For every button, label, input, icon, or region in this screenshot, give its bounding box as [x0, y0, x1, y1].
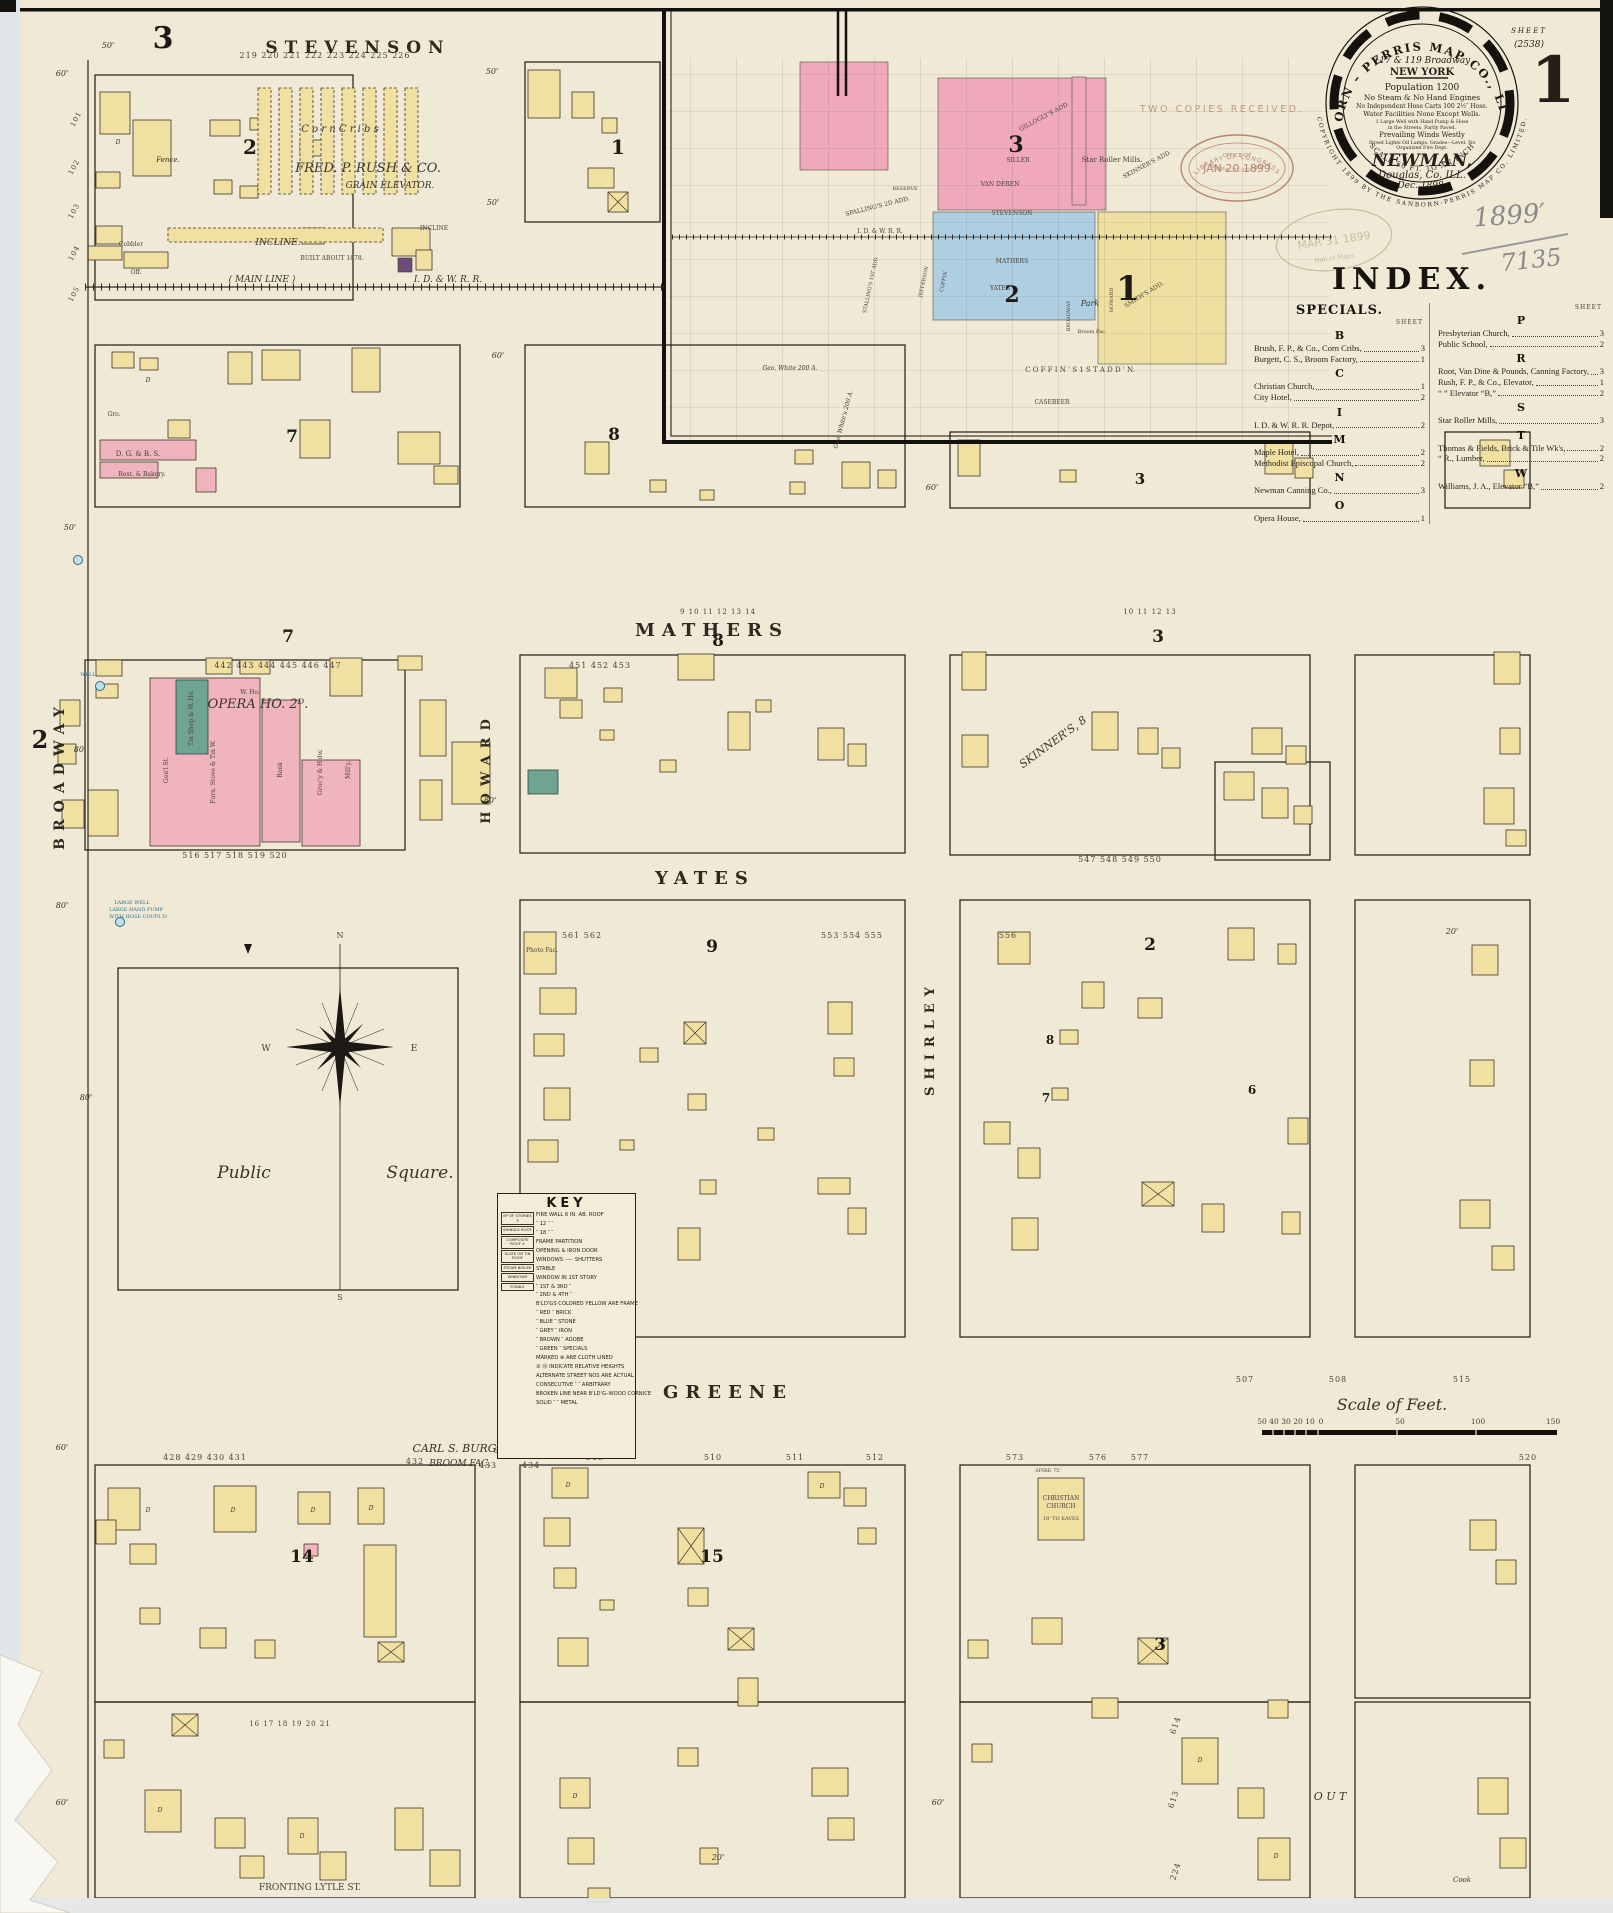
- building: [395, 1808, 423, 1850]
- inset-grid: [668, 58, 1330, 440]
- index-entry: Newman Canning Co., 3: [1254, 485, 1425, 496]
- building: [962, 652, 986, 690]
- building: [1494, 652, 1520, 684]
- building: [572, 92, 594, 118]
- map-label: 50': [102, 41, 114, 50]
- index-entry-name: Public School,: [1438, 339, 1488, 350]
- map-label: INCLINE.: [254, 238, 300, 248]
- map-label: Square.: [386, 1163, 453, 1183]
- map-label: D: [230, 1507, 236, 1514]
- key-line: ″ 2ND & 4TH ″: [536, 1291, 651, 1300]
- building: [528, 70, 560, 118]
- index-entry: City Hotel, 2: [1254, 392, 1425, 403]
- map-label: 3: [1135, 470, 1145, 488]
- scale-bar: Scale of Feet.: [1262, 1395, 1557, 1435]
- building: [858, 1528, 876, 1544]
- index-entry-name: Rush, F. P., & Co., Elevator,: [1438, 377, 1534, 388]
- map-label: 80': [56, 901, 68, 910]
- map-label: Bank: [277, 762, 284, 778]
- index-entry: Thomas & Fields, Brick & Tile Wk's, 2: [1438, 443, 1604, 454]
- map-label: 14: [290, 1547, 314, 1567]
- index-entry-sheet: 2: [1600, 481, 1604, 492]
- building: [321, 88, 334, 194]
- map-label: LARGE WELL: [114, 900, 150, 906]
- index-entry: Root, Van Dine & Pounds, Canning Factory…: [1438, 366, 1604, 377]
- index-sheet-header: SHEET: [1438, 304, 1602, 311]
- map-label: 433: [479, 1461, 497, 1470]
- building: [215, 1818, 245, 1848]
- map-label: Off.: [131, 269, 142, 276]
- map-label: 515: [1453, 1375, 1471, 1384]
- map-label: 553 554 555: [821, 931, 883, 940]
- map-label: 8: [712, 631, 724, 651]
- building: [240, 1856, 264, 1878]
- map-label: 60': [56, 1798, 68, 1807]
- building: [1282, 1212, 1300, 1234]
- map-label: 510: [704, 1453, 722, 1462]
- building: [430, 1850, 460, 1886]
- building: [1492, 1246, 1514, 1270]
- key-line: MARKED ⊗ ARE CLOTH LINED: [536, 1354, 651, 1363]
- pencil-year: 1899′: [1472, 199, 1546, 234]
- index-entry-sheet: 2: [1600, 453, 1604, 464]
- map-label: Geo. White 200 A.: [762, 365, 817, 372]
- building: [196, 468, 216, 492]
- index-leader-dots: [1301, 455, 1419, 456]
- building: [1478, 1778, 1508, 1814]
- index-entry-sheet: 2: [1421, 447, 1425, 458]
- index-leader-dots: [1336, 427, 1418, 428]
- map-label: Cook: [1453, 1876, 1471, 1884]
- key-line: FIRE WALL 6 IN. AB. ROOF: [536, 1211, 651, 1220]
- map-label: D: [145, 377, 151, 384]
- building: [1278, 944, 1296, 964]
- map-label: HOWARD: [1109, 288, 1115, 313]
- map-label: Tin Shop & W. Ho.: [188, 690, 195, 746]
- building: [560, 700, 582, 718]
- index-entry-sheet: 1: [1600, 377, 1604, 388]
- map-label: 3: [1154, 1635, 1166, 1655]
- index-entry-sheet: 2: [1600, 339, 1604, 350]
- key-line: SOLID ″ ″ METAL: [536, 1399, 651, 1408]
- index-leader-dots: [1567, 450, 1597, 451]
- map-label: ( MAIN LINE ): [229, 274, 296, 285]
- map-label: CASEBEER: [1034, 399, 1070, 406]
- index-entry-sheet: 3: [1421, 343, 1425, 354]
- building: [398, 656, 422, 670]
- map-label: 60': [926, 483, 938, 492]
- building: [1268, 1700, 1288, 1718]
- index-leader-dots: [1499, 423, 1597, 424]
- map-label: 50': [487, 198, 499, 207]
- index-entry: Star Roller Mills, 3: [1438, 415, 1604, 426]
- building: [878, 470, 896, 488]
- index-leader-dots: [1294, 400, 1419, 401]
- index-entry: Williams, J. A., Elevator “B,” 2: [1438, 481, 1604, 492]
- building: [650, 480, 666, 492]
- map-label: GRAIN ELEVATOR.: [346, 181, 435, 191]
- index-leader-dots: [1512, 336, 1598, 337]
- building: [812, 1768, 848, 1796]
- block-outline: [1355, 900, 1530, 1337]
- index-letter: W: [1438, 467, 1604, 480]
- index-entry-name: “ ” Elevator “B,”: [1438, 388, 1496, 399]
- building: [1082, 982, 1104, 1008]
- building: [828, 1002, 852, 1034]
- building: [972, 1744, 992, 1762]
- building: [1202, 1204, 1224, 1232]
- building: [688, 1588, 708, 1606]
- building: [1162, 748, 1180, 768]
- scale-tick: 50: [1395, 1417, 1405, 1426]
- key-side-label: STEAM BOILER: [501, 1264, 534, 1273]
- building: [1470, 1520, 1496, 1550]
- seal-date: Dec. 1898.: [1396, 181, 1446, 191]
- key-line: ″ GREEN ″ SPECIALS: [536, 1345, 651, 1354]
- key-line: OPENING & IRON DOOR: [536, 1247, 651, 1256]
- map-label: Public: [216, 1163, 271, 1183]
- index-entry-name: Newman Canning Co.,: [1254, 485, 1332, 496]
- index-column-right: SHEET P Presbyterian Church, 3 Public Sc…: [1429, 303, 1608, 524]
- well-marker: [74, 556, 83, 565]
- building: [984, 1122, 1010, 1144]
- map-label: Photo Fac.: [526, 947, 558, 954]
- map-label: 103: [67, 202, 82, 220]
- map-label: 2: [243, 135, 257, 159]
- key-line: ″ 18 ″ ″: [536, 1229, 651, 1238]
- index-leader-dots: [1303, 521, 1419, 522]
- key-side-label: Nº OF STORIES 3: [501, 1212, 534, 1225]
- index-entry-name: “ R., Lumber,: [1438, 453, 1485, 464]
- index-title: INDEX.: [1250, 262, 1574, 297]
- key-line: ″ RED ″ BRICK: [536, 1309, 651, 1318]
- map-label: D: [1197, 1757, 1203, 1764]
- map-label: 18' TO EAVES: [1043, 1516, 1080, 1522]
- index-entry: Maple Hotel, 2: [1254, 447, 1425, 458]
- sanborn-map-sheet: { "colors":{"paper":"#efe9d6","frame_yel…: [0, 0, 1613, 1913]
- key-line: B'LD'GS COLORED YELLOW ARE FRAME: [536, 1300, 651, 1309]
- map-label: SILLER: [1006, 157, 1030, 164]
- key-line: ″ BLUE ″ STONE: [536, 1318, 651, 1327]
- map-label: 9 10 11 12 13 14: [680, 608, 756, 616]
- map-label: SKINNER'S, 8: [1017, 713, 1089, 770]
- building: [96, 1520, 116, 1544]
- key-lines: FIRE WALL 6 IN. AB. ROOF ″ 12 ″ ″ ″ 18 ″…: [536, 1211, 651, 1408]
- building: [756, 700, 771, 712]
- map-label: 3: [1152, 627, 1164, 647]
- map-label: Park: [1080, 299, 1100, 308]
- index-entry: Brush, F. P., & Co., Corn Cribs, 3: [1254, 343, 1425, 354]
- map-label: 561 562: [562, 931, 602, 940]
- index-letter: O: [1254, 499, 1425, 512]
- building: [420, 780, 442, 820]
- map-label: 7: [286, 427, 298, 447]
- key-line: WINDOW IN 1ST STORY: [536, 1274, 651, 1283]
- building: [600, 1600, 614, 1610]
- building: [738, 1678, 758, 1706]
- index-entry: Burgett, C. S., Broom Factory, 1: [1254, 354, 1425, 365]
- inset-town-plan: [664, 10, 1332, 442]
- index-letter: I: [1254, 406, 1425, 419]
- building: [1506, 830, 1526, 846]
- map-label: 102: [67, 158, 82, 176]
- index-letter: P: [1438, 314, 1604, 327]
- map-label: 7: [282, 627, 294, 647]
- building: [258, 88, 271, 194]
- building: [640, 1048, 658, 1062]
- map-label: 6: [1248, 1083, 1256, 1097]
- map-label: CHURCH: [1046, 1503, 1075, 1510]
- map-label: 104: [67, 244, 82, 262]
- building: [320, 1852, 346, 1880]
- map-label: 219 220 221 222 223 224 225 226: [240, 51, 411, 60]
- index-leader-dots: [1487, 461, 1598, 462]
- block-outline: [118, 968, 458, 1290]
- building: [600, 730, 614, 740]
- map-label: 428 429 430 431: [163, 1453, 247, 1462]
- building: [1092, 1698, 1118, 1718]
- map-label: I. D. & W. R. R.: [413, 275, 482, 285]
- well-marker: [96, 682, 105, 691]
- compass-s-label: S: [337, 1293, 342, 1302]
- building: [678, 1228, 700, 1260]
- map-label: D: [572, 1793, 578, 1800]
- index-leader-dots: [1591, 374, 1598, 375]
- map-label: 556: [999, 931, 1017, 940]
- key-line: FRAME PARTITION: [536, 1238, 651, 1247]
- map-label: SPIRE 75': [1035, 1468, 1061, 1474]
- map-label: 442 443 444 445 446 447: [214, 661, 341, 670]
- key-legend-panel: KEY Nº OF STORIES 3 SHINGLE ROOF COMPOSI…: [497, 1193, 636, 1459]
- building: [834, 1058, 854, 1076]
- index-entry-sheet: 3: [1600, 328, 1604, 339]
- building: [585, 442, 609, 474]
- map-label: C O F F I N ' S 1 S T A D D ' N.: [1025, 366, 1135, 374]
- building: [1060, 1030, 1078, 1044]
- index-entry-sheet: 2: [1600, 443, 1604, 454]
- map-label: 511: [786, 1453, 804, 1462]
- map-label: 80': [74, 745, 86, 754]
- building: [962, 735, 988, 767]
- building: [214, 180, 232, 194]
- map-label: 60': [56, 69, 68, 78]
- index-entry: Christian Church, 1: [1254, 381, 1425, 392]
- building: [1018, 1148, 1040, 1178]
- map-label: Cobbler: [119, 241, 143, 248]
- index-entry: I. D. & W. R. R. Depot, 2: [1254, 420, 1425, 431]
- key-side-label: COMPOSITE ROOF 4: [501, 1236, 534, 1249]
- map-label: INCLINE: [420, 225, 448, 232]
- map-label: 20': [711, 1853, 724, 1862]
- index-leader-dots: [1355, 465, 1418, 466]
- map-label: C o r n C r i b s: [301, 124, 379, 135]
- map-label: D: [115, 139, 121, 146]
- building: [968, 1640, 988, 1658]
- index-entry-sheet: 2: [1421, 458, 1425, 469]
- map-label: 576: [1089, 1453, 1107, 1462]
- key-line: ALTERNATE STREET NOS ARE ACTUAL: [536, 1372, 651, 1381]
- building: [828, 1818, 854, 1840]
- scale-tick: 50: [1257, 1417, 1267, 1426]
- index-entry-sheet: 1: [1421, 354, 1425, 365]
- building: [168, 420, 190, 438]
- index-entry: Presbyterian Church, 3: [1438, 328, 1604, 339]
- map-label: RESERVE: [892, 186, 918, 192]
- building: [210, 120, 240, 136]
- sheet-big-number: 1: [1531, 43, 1576, 118]
- map-label: FRED. P. RUSH & CO.: [294, 161, 441, 176]
- scale-tick: 10: [1305, 1417, 1315, 1426]
- building: [958, 440, 980, 476]
- index-sheet-header: SHEET: [1254, 319, 1423, 326]
- building: [534, 1034, 564, 1056]
- building: [554, 1568, 576, 1588]
- key-line: ″ 1ST & 3RD ″: [536, 1283, 651, 1292]
- map-label: HOWARD: [479, 712, 494, 824]
- map-label: O U T: [1314, 1790, 1348, 1803]
- building: [416, 250, 432, 270]
- map-label: 15: [700, 1547, 724, 1567]
- building: [1288, 1118, 1308, 1144]
- map-label: 520: [1519, 1453, 1537, 1462]
- map-label: STEVENSON: [992, 210, 1033, 217]
- compass-n-label: N: [337, 931, 344, 940]
- index-column-left: SPECIALS. SHEET B Brush, F. P., & Co., C…: [1250, 303, 1429, 524]
- map-label: 9: [706, 937, 718, 957]
- building: [818, 728, 844, 760]
- map-label: BROADWAY: [1066, 300, 1072, 331]
- map-label: WITH HOSE COUPL'D: [109, 914, 167, 920]
- building: [545, 668, 577, 698]
- building: [700, 1180, 716, 1194]
- index-entry: Rush, F. P., & Co., Elevator, 1: [1438, 377, 1604, 388]
- building: [300, 420, 330, 458]
- map-label: 2: [32, 725, 49, 754]
- map-label: GREENE: [663, 1382, 793, 1403]
- building: [342, 88, 355, 194]
- building: [88, 790, 118, 836]
- map-label: LARGE HAND PUMP: [109, 907, 163, 913]
- building: [818, 1178, 850, 1194]
- building: [678, 654, 714, 680]
- block-outline: [95, 1465, 475, 1702]
- building: [130, 1544, 156, 1564]
- building: [1228, 928, 1254, 960]
- map-label: 60': [492, 351, 504, 360]
- building: [88, 246, 122, 260]
- building: [100, 92, 130, 134]
- map-label: 224: [1169, 1861, 1183, 1881]
- index-panel: INDEX. SPECIALS. SHEET B Brush, F. P., &…: [1250, 262, 1608, 524]
- key-line: BROKEN LINE NEAR B'LD'G–WOOD CORNICE: [536, 1390, 651, 1399]
- key-line: CONSECUTIVE ″ ″ ARBITRARY: [536, 1381, 651, 1390]
- seal-well-1: 1 Large Well with Hand Pump & Hose: [1376, 119, 1469, 125]
- index-letter: T: [1438, 429, 1604, 442]
- building: [700, 490, 714, 500]
- building: [568, 1838, 594, 1864]
- index-entry-name: Root, Van Dine & Pounds, Canning Factory…: [1438, 366, 1589, 377]
- index-entry-name: Burgett, C. S., Broom Factory,: [1254, 354, 1358, 365]
- building: [1252, 728, 1282, 754]
- index-entry-name: Methodist Episcopal Church,: [1254, 458, 1353, 469]
- building: [112, 352, 134, 368]
- map-label: 516 517 518 519 520: [182, 851, 288, 860]
- map-label: 80': [484, 796, 496, 805]
- index-entry-sheet: 2: [1421, 420, 1425, 431]
- map-label: 2: [1144, 935, 1156, 955]
- building: [420, 700, 446, 756]
- index-entry-name: Opera House,: [1254, 513, 1301, 524]
- index-entry-sheet: 3: [1600, 415, 1604, 426]
- seal-winds: Prevailing Winds Westly: [1379, 131, 1465, 139]
- building: [145, 1790, 181, 1832]
- index-entry-sheet: 1: [1421, 381, 1425, 392]
- building: [1496, 1560, 1516, 1584]
- scale-tick: 40: [1269, 1417, 1279, 1426]
- index-entry: “ ” Elevator “B,” 2: [1438, 388, 1604, 399]
- map-label: 451 452 453: [569, 661, 631, 670]
- map-label: 105: [67, 285, 82, 303]
- map-label: 507: [1236, 1375, 1254, 1384]
- scale-tick: 20: [1293, 1417, 1303, 1426]
- index-entry: Public School, 2: [1438, 339, 1604, 350]
- map-label: D: [368, 1505, 374, 1512]
- index-letter: B: [1254, 329, 1425, 342]
- map-label: I. D. & W. R. R.: [857, 228, 903, 235]
- seal-population: Population 1200: [1385, 83, 1460, 93]
- building: [1484, 788, 1514, 824]
- index-letter: R: [1438, 352, 1604, 365]
- building: [200, 1628, 226, 1648]
- map-label: 8: [608, 425, 620, 445]
- index-leader-dots: [1360, 361, 1419, 362]
- compass-w-label: W: [261, 1044, 271, 1054]
- compass-rose: [286, 987, 394, 1107]
- map-label: D: [1273, 1853, 1279, 1860]
- building: [1060, 470, 1076, 482]
- building: [1012, 1218, 1038, 1250]
- map-label: YATES: [989, 285, 1010, 292]
- map-label: 80': [80, 1093, 92, 1102]
- block-outline: [960, 1465, 1310, 1702]
- building: [1052, 1088, 1068, 1100]
- map-label: Fence.: [155, 156, 179, 164]
- map-label: 16 17 18 19 20 21: [249, 1720, 331, 1728]
- building: [1470, 1060, 1494, 1086]
- building: [1138, 728, 1158, 754]
- map-label: 7: [1042, 1091, 1050, 1105]
- index-entry-name: Christian Church,: [1254, 381, 1314, 392]
- key-line: ③ ⑲ INDICATE RELATIVE HEIGHTS: [536, 1363, 651, 1372]
- block-outline: [520, 655, 905, 853]
- map-label: 614: [1169, 1715, 1183, 1735]
- key-line: ″ GREY ″ IRON: [536, 1327, 651, 1336]
- map-label: FRONTING LYTLE ST.: [259, 1883, 361, 1893]
- map-label: 50': [64, 523, 76, 532]
- map-label: 508: [1329, 1375, 1347, 1384]
- building: [434, 466, 458, 484]
- index-letter: M: [1254, 433, 1425, 446]
- map-label: 60': [932, 1798, 944, 1807]
- key-side-label: STABLE: [501, 1283, 534, 1292]
- building: [1262, 788, 1288, 818]
- map-label: 1: [611, 135, 625, 159]
- map-label: SHIRLEY: [923, 980, 938, 1096]
- building: [688, 1094, 706, 1110]
- building: [228, 352, 252, 384]
- map-label: 50': [486, 67, 498, 76]
- building: [544, 1088, 570, 1120]
